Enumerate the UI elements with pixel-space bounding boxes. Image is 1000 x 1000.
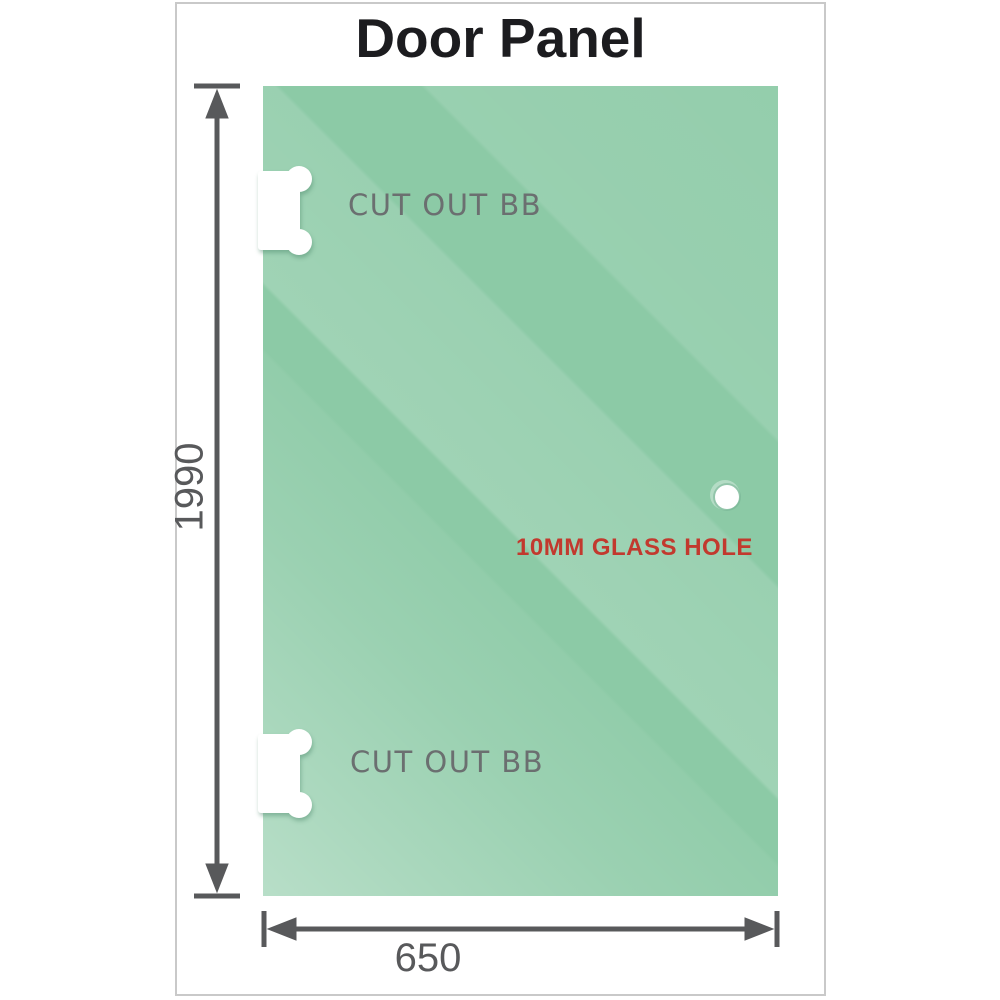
glass-hole — [715, 485, 739, 509]
cutout-label-top: CUT OUT BB — [348, 188, 542, 222]
width-dimension-arrow — [250, 905, 790, 957]
width-dimension-value: 650 — [395, 936, 462, 981]
door-panel-diagram: Door Panel CUT OUT BB CUT OUT BB 10MM GL… — [0, 0, 1000, 1000]
cutout-label-bottom: CUT OUT BB — [350, 745, 544, 779]
height-dimension-value: 1990 — [168, 443, 213, 532]
hinge-cutout-top-shape — [258, 164, 320, 259]
diagram-title: Door Panel — [175, 6, 826, 70]
glass-hole-label: 10MM GLASS HOLE — [516, 534, 753, 562]
hinge-cutout-bottom-shape — [258, 727, 320, 822]
